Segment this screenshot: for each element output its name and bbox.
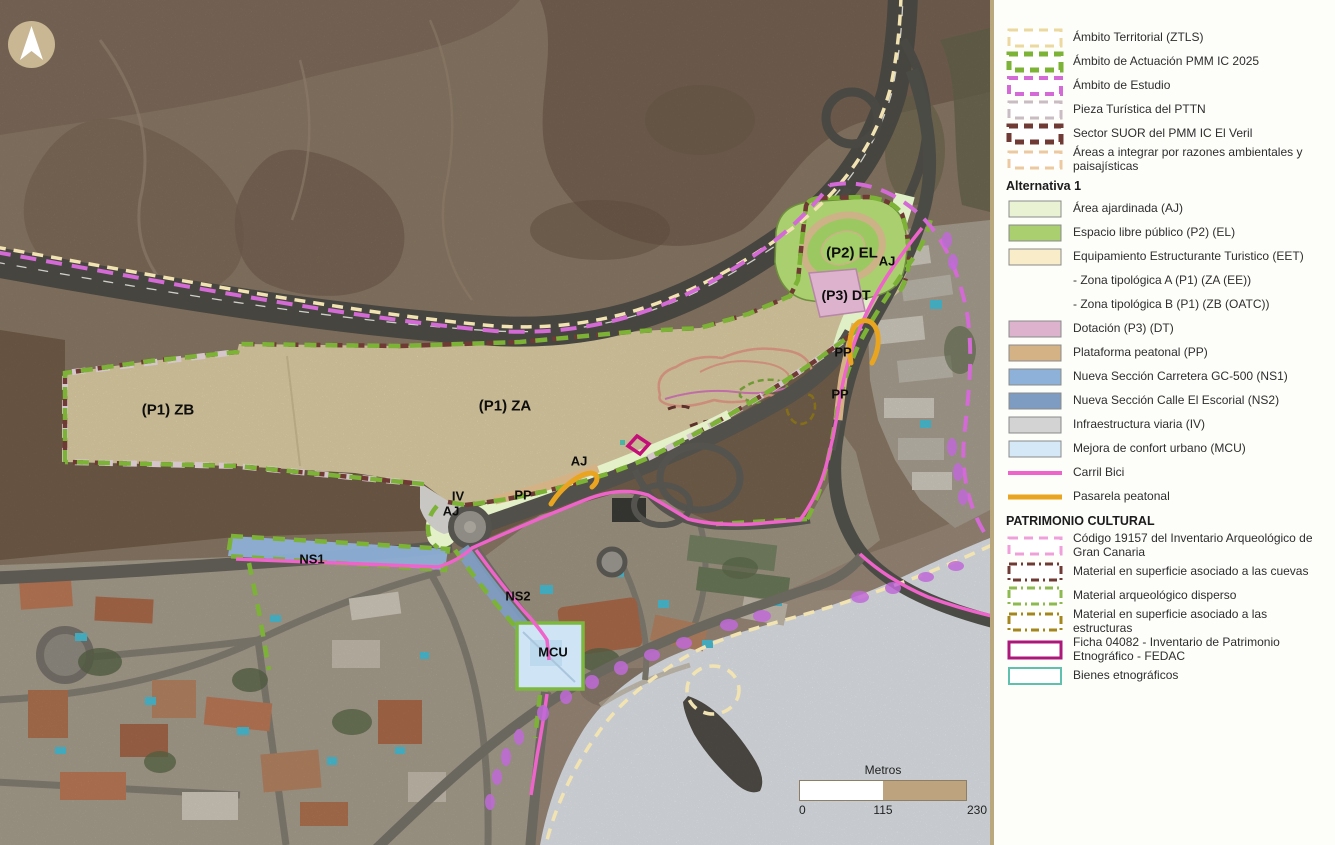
legend-item: Sector SUOR del PMM IC El Veril xyxy=(1006,122,1327,145)
north-arrow-icon xyxy=(8,21,55,68)
map-region-label: NS1 xyxy=(299,552,324,567)
legend-item-label: Espacio libre público (P2) (EL) xyxy=(1073,226,1235,240)
scalebar-ticks: 0115230 xyxy=(799,803,967,819)
dashdot-swatch xyxy=(1006,611,1064,633)
outline-swatch xyxy=(1006,639,1064,661)
map-region-label: MCU xyxy=(538,645,568,660)
legend-item: Bienes etnográficos xyxy=(1006,664,1327,687)
legend-item-label: Ficha 04082 - Inventario de Patrimonio E… xyxy=(1073,636,1327,663)
map-region-label: (P1) ZB xyxy=(142,402,195,419)
scalebar-segment xyxy=(800,781,883,800)
dashed-swatch xyxy=(1006,27,1064,49)
legend-item-label: Carril Bici xyxy=(1073,466,1124,480)
legend-item: Ámbito de Estudio xyxy=(1006,74,1327,97)
scalebar: Metros 0115230 xyxy=(799,763,967,819)
legend-item: - Zona tipológica A (P1) (ZA (EE)) xyxy=(1006,269,1327,292)
legend-item: - Zona tipológica B (P1) (ZB (OATC)) xyxy=(1006,293,1327,316)
fill-swatch xyxy=(1006,414,1064,436)
legend-item-label: Ámbito de Actuación PMM IC 2025 xyxy=(1073,55,1259,69)
legend-item: Material arqueológico disperso xyxy=(1006,584,1327,607)
legend-item-label: Pasarela peatonal xyxy=(1073,490,1170,504)
fill-swatch xyxy=(1006,366,1064,388)
dashed-swatch xyxy=(1006,75,1064,97)
dashdot-swatch xyxy=(1006,561,1064,583)
map-region-label: AJ xyxy=(879,254,896,269)
fill-swatch xyxy=(1006,318,1064,340)
dashed-swatch xyxy=(1006,123,1064,145)
legend-item-label: Área ajardinada (AJ) xyxy=(1073,202,1183,216)
map-region-label: PP xyxy=(831,387,848,402)
fill-swatch xyxy=(1006,390,1064,412)
map-region-label: PP xyxy=(834,345,851,360)
legend-item: Áreas a integrar por razones ambientales… xyxy=(1006,146,1327,173)
legend-item-label: - Zona tipológica B (P1) (ZB (OATC)) xyxy=(1073,298,1270,312)
fill-swatch xyxy=(1006,222,1064,244)
scalebar-segment xyxy=(883,781,966,800)
map-region-label: AJ xyxy=(443,504,460,519)
legend-item-label: Infraestructura viaria (IV) xyxy=(1073,418,1205,432)
legend-item-label: Áreas a integrar por razones ambientales… xyxy=(1073,146,1327,173)
fill-swatch xyxy=(1006,342,1064,364)
legend-panel: Ámbito Territorial (ZTLS)Ámbito de Actua… xyxy=(990,0,1335,845)
fill-swatch xyxy=(1006,438,1064,460)
map-canvas xyxy=(0,0,990,845)
map-region-label: PP xyxy=(514,488,531,503)
legend-item-label: Nueva Sección Carretera GC-500 (NS1) xyxy=(1073,370,1288,384)
planning-map-sheet: (P1) ZB(P1) ZA(P2) ELAJ(P3) DTPPPPAJPPIV… xyxy=(0,0,1335,845)
legend-item: Carril Bici xyxy=(1006,461,1327,484)
legend-item: Nueva Sección Carretera GC-500 (NS1) xyxy=(1006,365,1327,388)
dashed-swatch xyxy=(1006,535,1064,557)
map-region-label: NS2 xyxy=(505,589,530,604)
legend-item: Ficha 04082 - Inventario de Patrimonio E… xyxy=(1006,636,1327,663)
legend-item-label: - Zona tipológica A (P1) (ZA (EE)) xyxy=(1073,274,1251,288)
legend-item-label: Material en superficie asociado a las es… xyxy=(1073,608,1327,635)
legend-item: Infraestructura viaria (IV) xyxy=(1006,413,1327,436)
legend-item-label: Nueva Sección Calle El Escorial (NS2) xyxy=(1073,394,1279,408)
legend-item-label: Código 19157 del Inventario Arqueológico… xyxy=(1073,532,1327,559)
map-region-label: AJ xyxy=(571,454,588,469)
legend-item: Mejora de confort urbano (MCU) xyxy=(1006,437,1327,460)
map-region-label: (P1) ZA xyxy=(479,398,532,415)
legend-item-label: Material en superficie asociado a las cu… xyxy=(1073,565,1308,579)
roundabout-center xyxy=(464,521,476,533)
bienes-marker xyxy=(620,440,625,445)
map-region-label: (P2) EL xyxy=(826,245,878,262)
legend-item: Ámbito de Actuación PMM IC 2025 xyxy=(1006,50,1327,73)
dashdot-swatch xyxy=(1006,585,1064,607)
scalebar-tick: 0 xyxy=(799,803,806,817)
dashed-swatch xyxy=(1006,149,1064,171)
legend-item-label: Sector SUOR del PMM IC El Veril xyxy=(1073,127,1252,141)
legend-item: Plataforma peatonal (PP) xyxy=(1006,341,1327,364)
legend-item-label: Dotación (P3) (DT) xyxy=(1073,322,1174,336)
legend-section-header: Alternativa 1 xyxy=(1006,179,1327,193)
swatch-spacer xyxy=(1006,294,1064,316)
legend-item: Nueva Sección Calle El Escorial (NS2) xyxy=(1006,389,1327,412)
scalebar-title: Metros xyxy=(799,763,967,777)
line-swatch xyxy=(1006,486,1064,508)
legend-item-label: Bienes etnográficos xyxy=(1073,669,1178,683)
fill-swatch xyxy=(1006,198,1064,220)
legend-item: Código 19157 del Inventario Arqueológico… xyxy=(1006,532,1327,559)
legend-item: Pieza Turística del PTTN xyxy=(1006,98,1327,121)
dashed-swatch xyxy=(1006,99,1064,121)
legend-item: Equipamiento Estructurante Turistico (EE… xyxy=(1006,245,1327,268)
legend-item: Material en superficie asociado a las es… xyxy=(1006,608,1327,635)
legend-item-label: Material arqueológico disperso xyxy=(1073,589,1236,603)
legend-item-label: Mejora de confort urbano (MCU) xyxy=(1073,442,1246,456)
map-region-label: (P3) DT xyxy=(822,287,871,303)
legend-item-label: Ámbito de Estudio xyxy=(1073,79,1170,93)
legend-item-label: Pieza Turística del PTTN xyxy=(1073,103,1206,117)
legend-item: Espacio libre público (P2) (EL) xyxy=(1006,221,1327,244)
swatch-spacer xyxy=(1006,270,1064,292)
roundabout xyxy=(599,549,625,575)
map-region-label: IV xyxy=(452,489,464,504)
fill-swatch xyxy=(1006,246,1064,268)
legend-item: Área ajardinada (AJ) xyxy=(1006,197,1327,220)
scalebar-bar xyxy=(799,780,967,801)
legend-item-label: Ámbito Territorial (ZTLS) xyxy=(1073,31,1203,45)
outline-swatch xyxy=(1006,665,1064,687)
legend-item: Dotación (P3) (DT) xyxy=(1006,317,1327,340)
line-swatch xyxy=(1006,462,1064,484)
legend-item: Material en superficie asociado a las cu… xyxy=(1006,560,1327,583)
dashed-swatch xyxy=(1006,51,1064,73)
legend-item: Pasarela peatonal xyxy=(1006,485,1327,508)
legend-section-header: PATRIMONIO CULTURAL xyxy=(1006,514,1327,528)
legend-item-label: Equipamiento Estructurante Turistico (EE… xyxy=(1073,250,1304,264)
scalebar-tick: 115 xyxy=(873,803,892,817)
legend-item-label: Plataforma peatonal (PP) xyxy=(1073,346,1208,360)
map-area: (P1) ZB(P1) ZA(P2) ELAJ(P3) DTPPPPAJPPIV… xyxy=(0,0,990,845)
legend-item: Ámbito Territorial (ZTLS) xyxy=(1006,26,1327,49)
